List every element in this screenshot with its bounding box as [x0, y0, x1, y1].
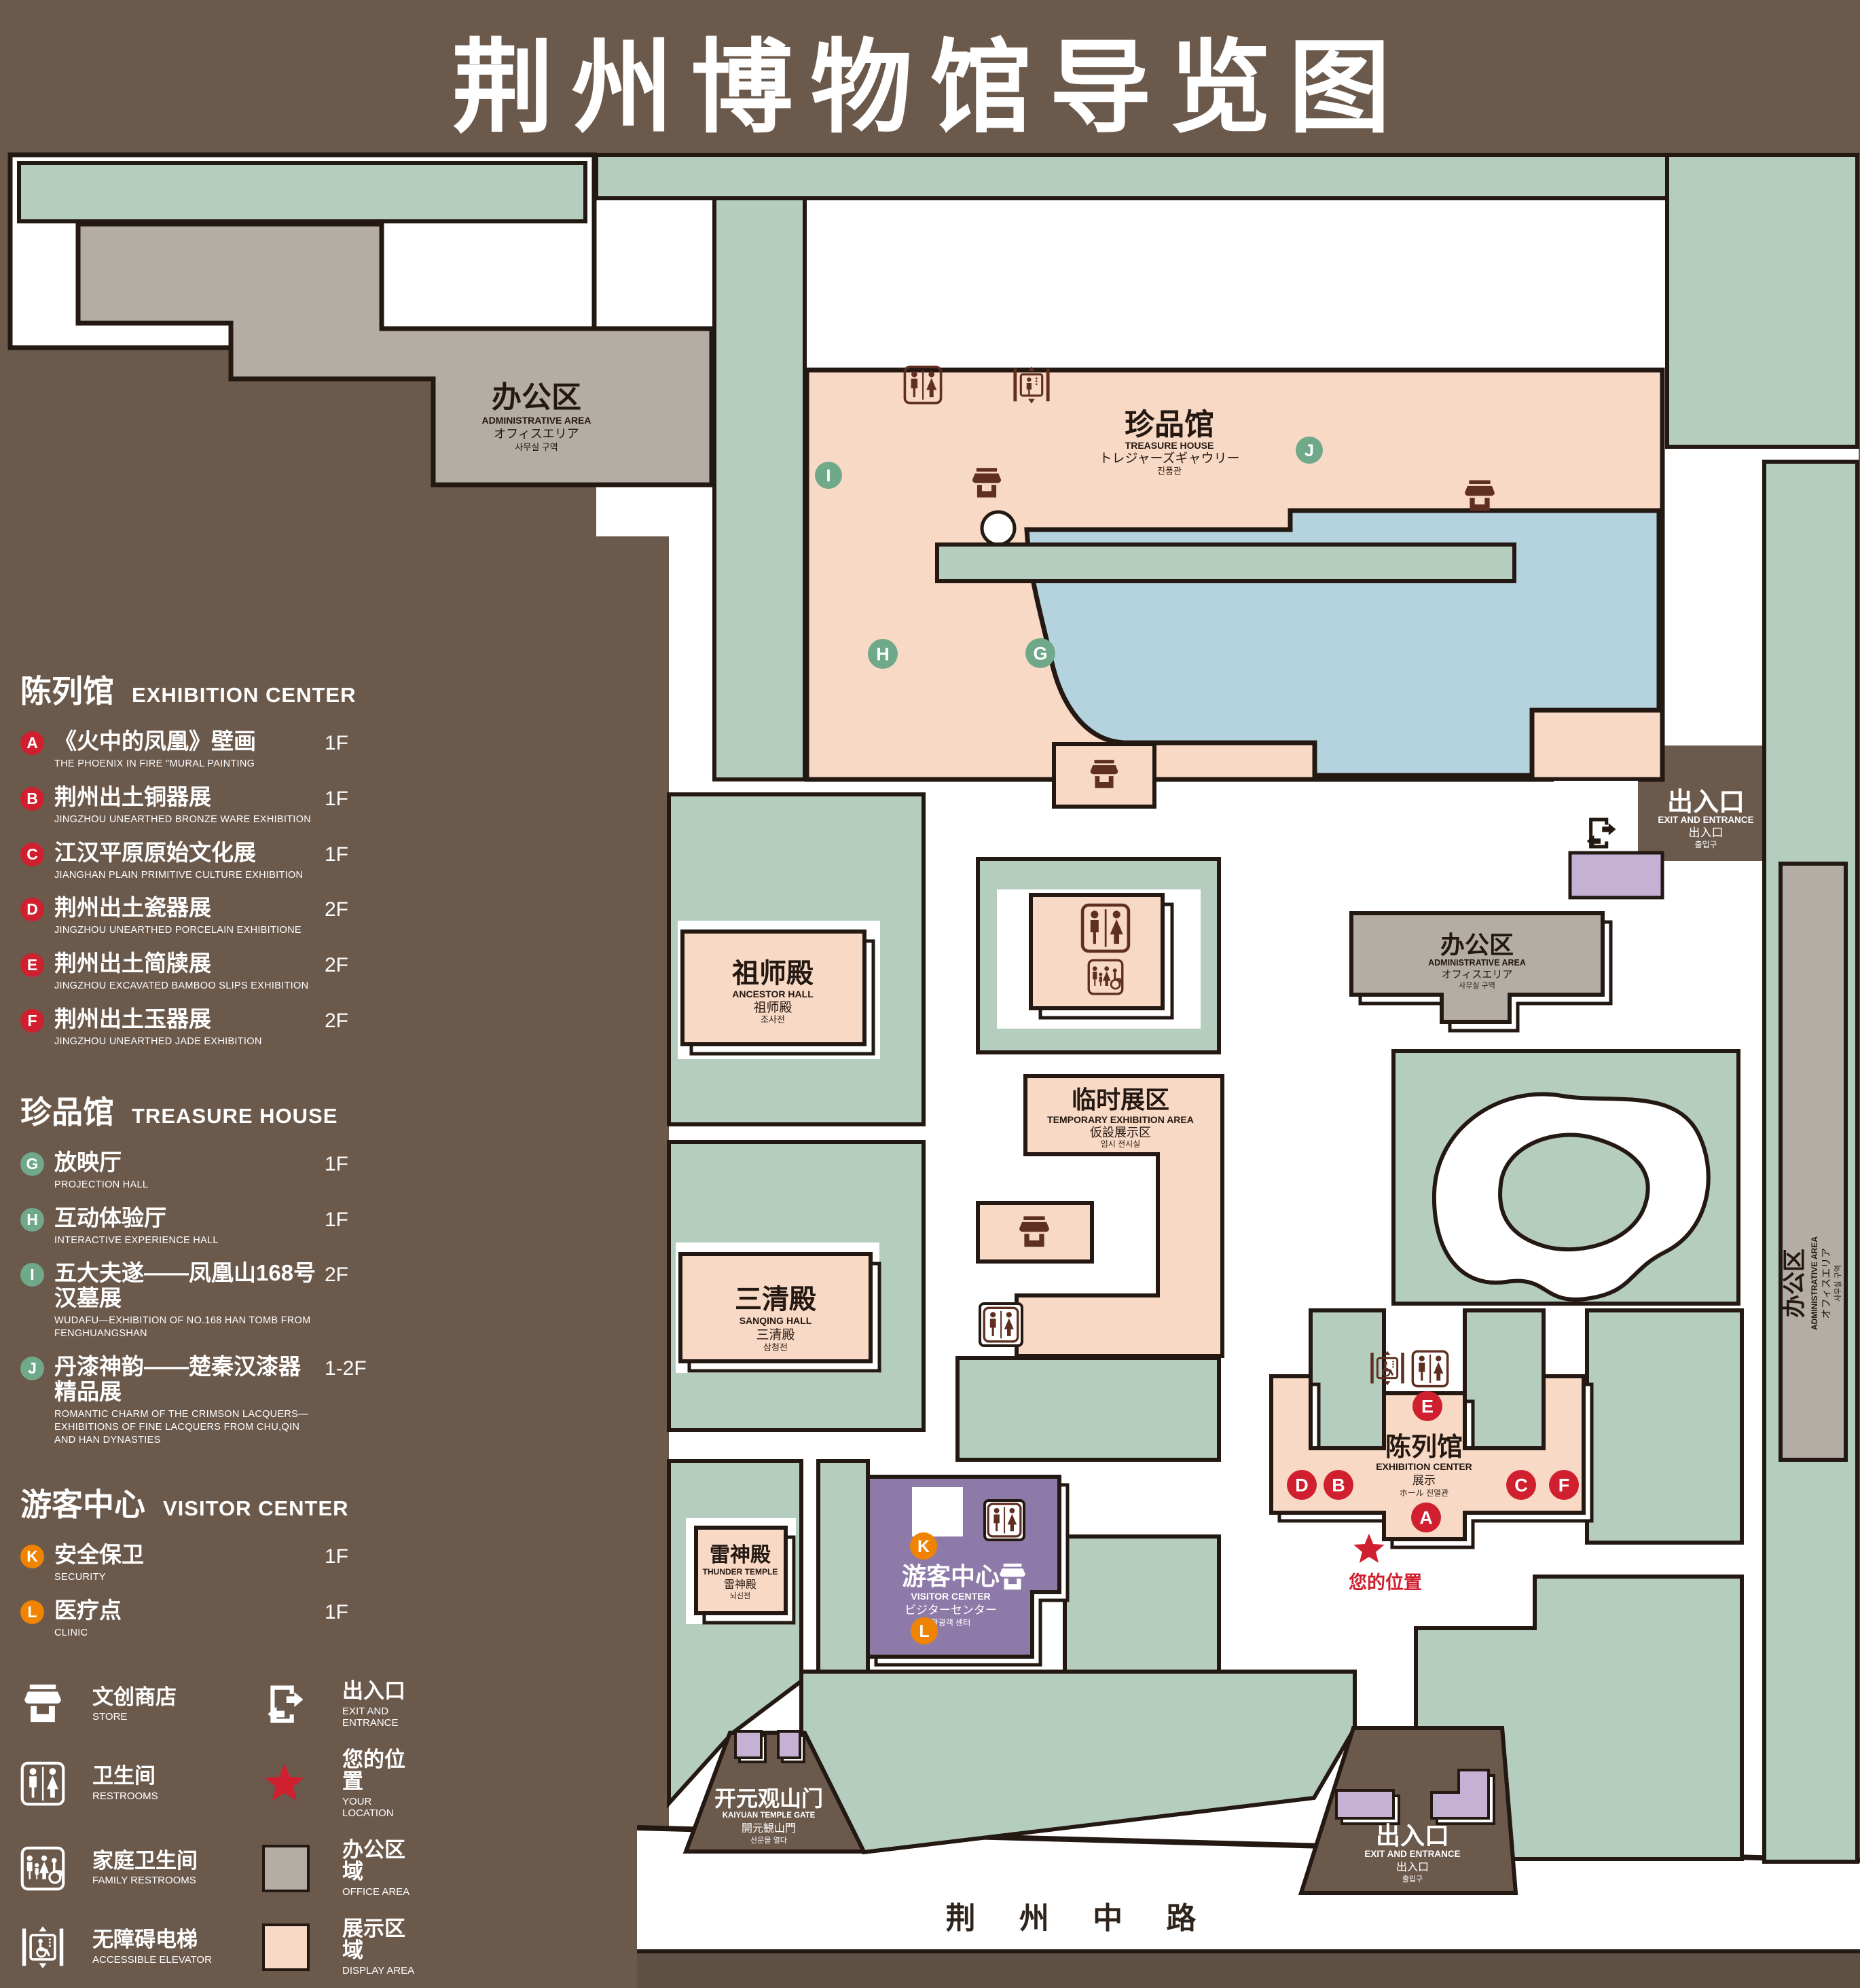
section-title-en: VISITOR CENTER — [163, 1496, 349, 1521]
floor-label: 1F — [325, 732, 348, 755]
legend-item-g: G 放映厅 PROJECTION HALL 1F — [20, 1150, 387, 1192]
svg-text:ANCESTOR HALL: ANCESTOR HALL — [732, 989, 814, 999]
floor-label: 2F — [325, 898, 348, 921]
marker-e: E — [1412, 1391, 1442, 1421]
your-location-label: 您的位置 — [1349, 1572, 1422, 1593]
svg-text:陈列馆: 陈列馆 — [1385, 1433, 1463, 1462]
marker-g: G — [1025, 638, 1055, 668]
svg-text:출입구: 출입구 — [1694, 840, 1717, 849]
road-label: 荆 州 中 路 — [946, 1902, 1214, 1935]
temporary-store-box — [978, 1203, 1092, 1262]
section-title-zh: 游客中心 — [20, 1480, 145, 1525]
svg-text:珍品馆: 珍品馆 — [1125, 408, 1214, 441]
exit-tr-building — [1570, 853, 1662, 898]
svg-text:展示: 展示 — [1412, 1474, 1436, 1487]
svg-text:SANQING HALL: SANQING HALL — [740, 1315, 812, 1326]
svg-text:사무실 구역: 사무실 구역 — [1834, 1265, 1842, 1302]
svg-text:임시 전시실: 임시 전시실 — [1101, 1139, 1141, 1149]
marker-l: L — [911, 1617, 938, 1644]
marker-c: C — [1506, 1470, 1536, 1500]
svg-text:ビジターセンター: ビジターセンター — [905, 1604, 997, 1617]
marker-b: B — [1324, 1470, 1353, 1500]
svg-text:진품관: 진품관 — [1157, 466, 1182, 476]
svg-text:仮設展示区: 仮設展示区 — [1090, 1126, 1151, 1139]
marker-badge-k: K — [20, 1545, 44, 1568]
green-topright-block — [1667, 155, 1857, 447]
marker-badge-j: J — [20, 1357, 44, 1380]
svg-text:出入口: 出入口 — [1396, 1861, 1429, 1873]
legend-item-f: F 荆州出土玉器展 JINGZHOU UNEARTHED JADE EXHIBI… — [20, 1007, 387, 1048]
floor-label: 1F — [325, 1153, 348, 1176]
legend-section-visitor-center: 游客中心 VISITOR CENTER K 安全保卫 SECURITY 1F L… — [20, 1480, 387, 1640]
floor-label: 2F — [325, 1264, 348, 1287]
svg-text:조사전: 조사전 — [761, 1014, 785, 1025]
gate-pillar-left — [735, 1731, 761, 1758]
marker-badge-b: B — [20, 787, 44, 811]
svg-text:TREASURE HOUSE: TREASURE HOUSE — [1125, 440, 1214, 451]
legend-item-l: L 医疗点 CLINIC 1F — [20, 1598, 387, 1640]
floor-label: 2F — [325, 1010, 348, 1033]
svg-text:삼청전: 삼청전 — [763, 1342, 788, 1352]
family-restrooms-icon — [20, 1846, 65, 1891]
office-area-swatch — [262, 1845, 310, 1892]
green-treasure-left-column — [714, 198, 805, 779]
marker-badge-h: H — [20, 1208, 44, 1232]
svg-text:KAIYUAN TEMPLE GATE: KAIYUAN TEMPLE GATE — [723, 1811, 816, 1820]
svg-text:H: H — [876, 644, 890, 664]
svg-text:祖师殿: 祖师殿 — [732, 959, 814, 989]
svg-text:E: E — [1421, 1396, 1434, 1416]
admin-tl-green — [19, 163, 585, 221]
marker-h: H — [868, 639, 898, 669]
marker-badge-d: D — [20, 898, 44, 921]
svg-text:オフィスエリア: オフィスエリア — [494, 427, 579, 441]
svg-text:祖师殿: 祖师殿 — [753, 1000, 792, 1015]
store-icon — [20, 1682, 65, 1727]
svg-text:D: D — [1295, 1475, 1309, 1495]
road-south-strip — [637, 1951, 1860, 1988]
marker-badge-i: I — [20, 1263, 44, 1287]
legend-item-d: D 荆州出土瓷器展 JINGZHOU UNEARTHED PORCELAIN E… — [20, 896, 387, 937]
svg-text:K: K — [917, 1537, 930, 1556]
display-area-swatch — [262, 1923, 310, 1971]
svg-text:EXIT AND ENTRANCE: EXIT AND ENTRANCE — [1658, 815, 1753, 825]
svg-text:三清殿: 三清殿 — [735, 1285, 816, 1314]
floor-label: 1F — [325, 1601, 348, 1624]
section-title-en: EXHIBITION CENTER — [132, 683, 356, 707]
legend-symbol-grid: 文创商店STORE 出入口EXIT AND ENTRANCE 卫生间RESTRO… — [20, 1680, 387, 1988]
svg-text:オフィスエリア: オフィスエリア — [1442, 969, 1513, 980]
section-title-zh: 陈列馆 — [20, 667, 114, 712]
marker-badge-g: G — [20, 1152, 44, 1176]
svg-text:办公区: 办公区 — [492, 381, 581, 414]
svg-text:B: B — [1332, 1475, 1345, 1495]
visitor-center-notch — [912, 1487, 963, 1536]
svg-text:I: I — [826, 466, 831, 485]
svg-text:ADMINISTRATIVE AREA: ADMINISTRATIVE AREA — [1428, 958, 1526, 968]
svg-text:C: C — [1514, 1475, 1528, 1495]
svg-text:办公区: 办公区 — [1782, 1249, 1808, 1318]
svg-text:A: A — [1419, 1507, 1433, 1528]
legend-item-i: I 五大夫遂——凤凰山168号汉墓展 WUDAFU—EXHIBITION OF … — [20, 1261, 387, 1340]
green-courtyard-right — [1465, 1310, 1544, 1448]
legend-item-b: B 荆州出土铜器展 JINGZHOU UNEARTHED BRONZE WARE… — [20, 785, 387, 826]
svg-text:THUNDER TEMPLE: THUNDER TEMPLE — [703, 1567, 778, 1577]
legend-item-j: J 丹漆神韵——楚秦汉漆器精品展 ROMANTIC CHARM OF THE C… — [20, 1355, 387, 1446]
svg-text:開元観山門: 開元観山門 — [742, 1822, 796, 1835]
svg-text:EXIT AND ENTRANCE: EXIT AND ENTRANCE — [1364, 1849, 1460, 1859]
svg-text:出入口: 出入口 — [1667, 788, 1745, 817]
marker-badge-a: A — [20, 731, 44, 755]
marker-badge-c: C — [20, 843, 44, 866]
svg-text:VISITOR CENTER: VISITOR CENTER — [911, 1591, 990, 1602]
svg-text:游客中心: 游客中心 — [902, 1562, 1000, 1590]
svg-text:산문을 열다: 산문을 열다 — [750, 1836, 787, 1845]
green-mid-1 — [958, 1358, 1219, 1460]
marker-i: I — [815, 462, 842, 489]
svg-text:TEMPORARY EXHIBITION AREA: TEMPORARY EXHIBITION AREA — [1047, 1114, 1194, 1125]
legend-item-h: H 互动体验厅 INTERACTIVE EXPERIENCE HALL 1F — [20, 1206, 387, 1247]
legend-section-exhibition-center: 陈列馆 EXHIBITION CENTER A 《火中的凤凰》壁画 THE PH… — [20, 667, 387, 1048]
floor-label: 1F — [325, 788, 348, 811]
svg-text:L: L — [919, 1622, 929, 1641]
green-mid-2 — [818, 1461, 868, 1672]
marker-badge-f: F — [20, 1009, 44, 1033]
floor-label: 2F — [325, 954, 348, 977]
marker-f: F — [1549, 1470, 1579, 1500]
floor-label: 1F — [325, 1209, 348, 1232]
svg-text:雷神殿: 雷神殿 — [724, 1579, 756, 1591]
legend-item-c: C 江汉平原原始文化展 JIANGHAN PLAIN PRIMITIVE CUL… — [20, 841, 387, 882]
svg-text:办公区: 办公区 — [1440, 931, 1514, 959]
exit-bottom-building-1 — [1336, 1790, 1393, 1818]
svg-text:사무실 구역: 사무실 구역 — [515, 442, 558, 452]
svg-text:F: F — [1558, 1475, 1570, 1495]
svg-text:출입구: 출입구 — [1402, 1875, 1423, 1883]
svg-text:临时展区: 临时展区 — [1072, 1086, 1169, 1113]
svg-text:开元观山门: 开元观山门 — [714, 1786, 823, 1811]
treasure-green-bar — [937, 545, 1514, 581]
treasure-pond-bump — [982, 512, 1015, 545]
marker-d: D — [1287, 1470, 1317, 1500]
svg-text:オフィスエリア: オフィスエリア — [1821, 1248, 1832, 1319]
legend-section-treasure-house: 珍品馆 TREASURE HOUSE G 放映厅 PROJECTION HALL… — [20, 1088, 387, 1447]
green-top-band — [596, 155, 1668, 198]
floor-label: 1-2F — [325, 1357, 367, 1380]
svg-text:뇌신전: 뇌신전 — [730, 1591, 750, 1600]
legend-item-e: E 荆州出土简牍展 JINGZHOU EXCAVATED BAMBOO SLIP… — [20, 951, 387, 993]
svg-text:ADMINISTRATIVE AREA: ADMINISTRATIVE AREA — [482, 415, 591, 426]
floor-label: 1F — [325, 1545, 348, 1568]
section-title-zh: 珍品馆 — [20, 1088, 114, 1133]
svg-text:トレジャーズギャウリー: トレジャーズギャウリー — [1099, 451, 1239, 466]
treasure-store-box — [1054, 744, 1154, 807]
marker-j: J — [1296, 437, 1323, 464]
svg-text:사무실 구역: 사무실 구역 — [1459, 981, 1495, 990]
green-east-block — [1587, 1310, 1742, 1543]
floor-label: 1F — [325, 843, 348, 866]
accessible-elevator-icon — [20, 1925, 65, 1970]
gate-pillar-right — [778, 1731, 800, 1758]
svg-text:ホール 진열관: ホール 진열관 — [1400, 1488, 1448, 1498]
legend-item-a: A 《火中的凤凰》壁画 THE PHOENIX IN FIRE "MURAL P… — [20, 729, 387, 771]
svg-text:雷神殿: 雷神殿 — [710, 1544, 771, 1566]
marker-a: A — [1411, 1503, 1441, 1532]
svg-text:三清殿: 三清殿 — [756, 1327, 795, 1342]
svg-text:G: G — [1033, 643, 1047, 663]
svg-text:出入口: 出入口 — [1689, 826, 1724, 839]
marker-badge-e: E — [20, 953, 44, 977]
your-location-icon — [262, 1761, 307, 1806]
marker-badge-l: L — [20, 1600, 44, 1624]
green-mid-3 — [1065, 1536, 1219, 1672]
svg-text:J: J — [1305, 441, 1314, 460]
svg-text:出入口: 出入口 — [1376, 1822, 1449, 1849]
restrooms-icon — [20, 1761, 65, 1806]
section-title-en: TREASURE HOUSE — [132, 1104, 338, 1128]
admin-strip-building — [1781, 864, 1846, 1460]
exit-entrance-icon — [262, 1682, 307, 1727]
svg-text:EXHIBITION CENTER: EXHIBITION CENTER — [1376, 1461, 1472, 1472]
legend-item-k: K 安全保卫 SECURITY 1F — [20, 1543, 387, 1584]
legend-panel: 陈列馆 EXHIBITION CENTER A 《火中的凤凰》壁画 THE PH… — [20, 667, 387, 1988]
marker-k: K — [910, 1532, 937, 1560]
garden-island — [1500, 1135, 1648, 1250]
svg-text:ADMINISTRATIVE AREA: ADMINISTRATIVE AREA — [1810, 1236, 1819, 1330]
